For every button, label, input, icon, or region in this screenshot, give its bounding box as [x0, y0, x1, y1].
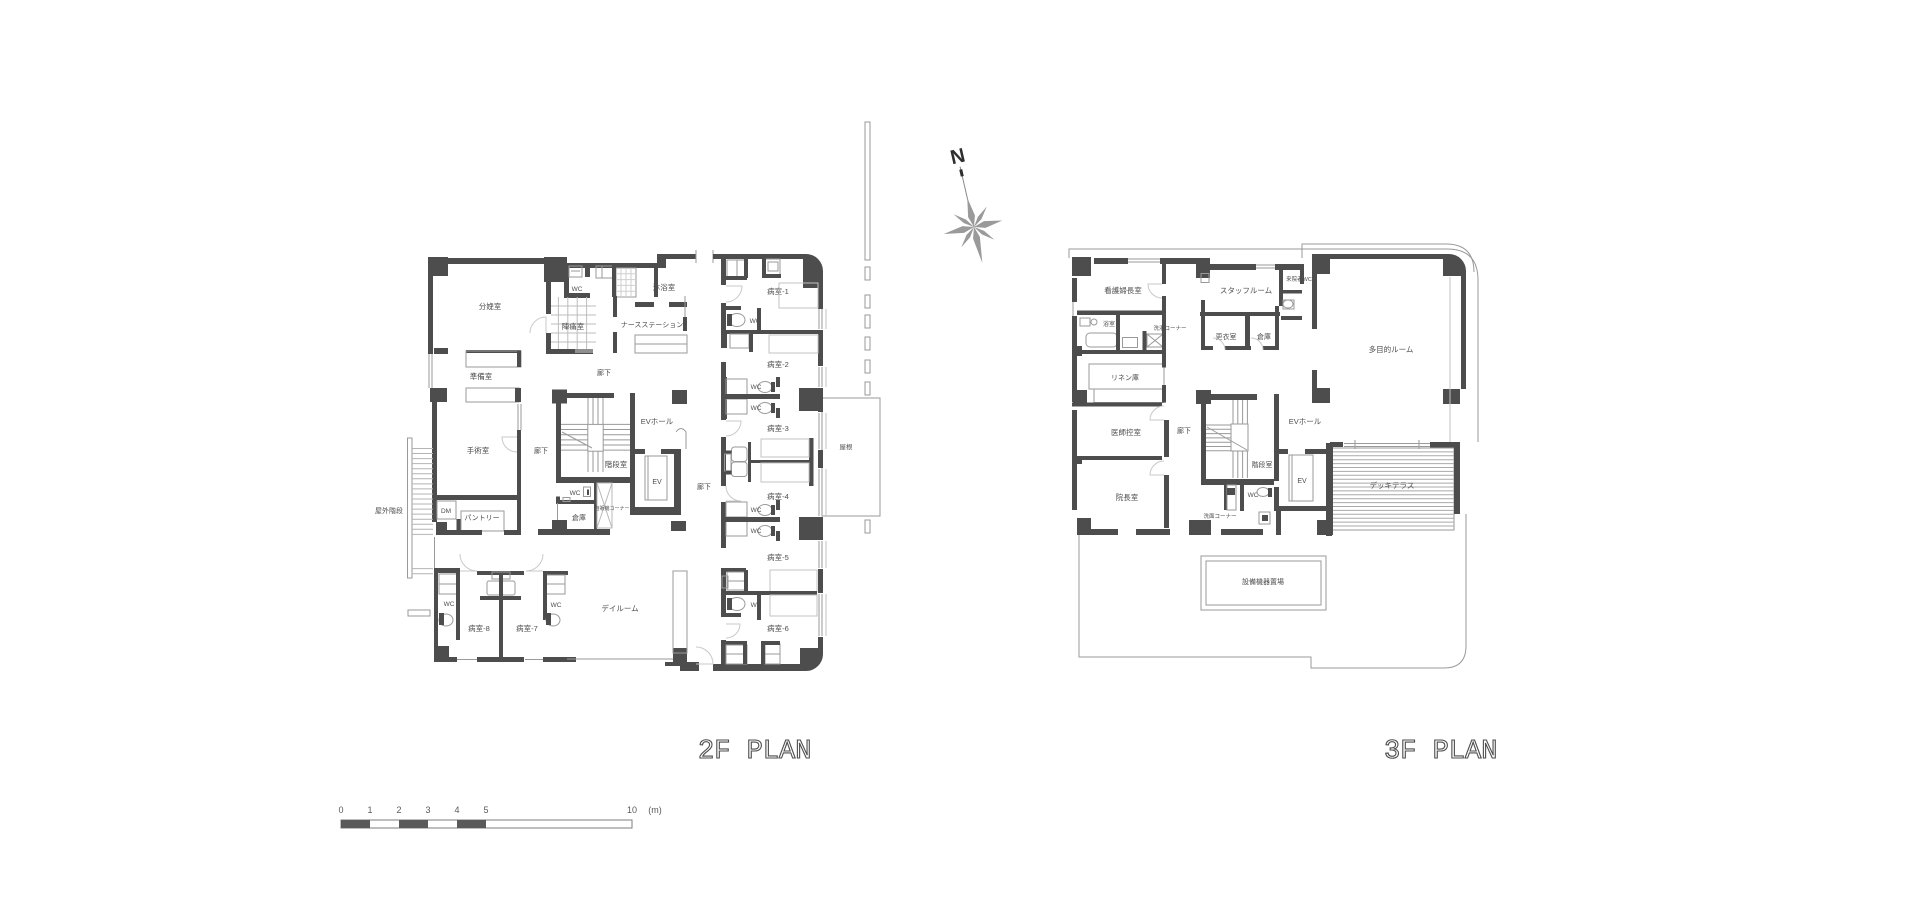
- svg-text:2: 2: [396, 805, 401, 815]
- svg-text:浴室: 浴室: [1103, 320, 1115, 328]
- svg-text:WC: WC: [572, 286, 583, 293]
- svg-text:設備機器置場: 設備機器置場: [1242, 577, 1284, 586]
- svg-text:病室-8: 病室-8: [468, 623, 490, 633]
- svg-text:病室-7: 病室-7: [516, 623, 538, 633]
- svg-text:4: 4: [454, 805, 459, 815]
- svg-text:階段室: 階段室: [1252, 460, 1273, 469]
- svg-text:リネン庫: リネン庫: [1111, 373, 1139, 382]
- svg-text:廊下: 廊下: [697, 482, 711, 491]
- svg-text:WC: WC: [751, 507, 762, 514]
- svg-text:EV: EV: [652, 479, 662, 486]
- svg-text:病室-3: 病室-3: [767, 423, 789, 433]
- svg-text:陣痛室: 陣痛室: [562, 321, 585, 331]
- svg-text:多目的ルーム: 多目的ルーム: [1369, 344, 1414, 354]
- svg-text:来院者WC: 来院者WC: [1286, 275, 1312, 283]
- svg-text:WC: WC: [551, 602, 562, 609]
- svg-text:0: 0: [338, 805, 343, 815]
- svg-text:ナースステーション: ナースステーション: [621, 321, 684, 329]
- svg-text:スタッフルーム: スタッフルーム: [1220, 286, 1272, 295]
- svg-text:看護婦長室: 看護婦長室: [1104, 285, 1142, 295]
- svg-text:EV: EV: [1297, 478, 1307, 485]
- svg-text:10: 10: [627, 805, 637, 815]
- svg-text:階段室: 階段室: [605, 459, 628, 469]
- svg-text:病室-5: 病室-5: [767, 552, 789, 562]
- svg-text:病室-6: 病室-6: [767, 623, 789, 633]
- svg-text:デイルーム: デイルーム: [601, 603, 638, 613]
- svg-text:病室-1: 病室-1: [767, 286, 789, 296]
- svg-text:廊下: 廊下: [597, 368, 611, 377]
- svg-text:2F PLAN: 2F PLAN: [698, 737, 811, 767]
- svg-text:分娩室: 分娩室: [479, 301, 502, 311]
- svg-text:病室-2: 病室-2: [767, 359, 789, 369]
- svg-text:WC: WC: [570, 490, 581, 497]
- svg-text:手術室: 手術室: [467, 445, 490, 455]
- svg-text:洗面コーナー: 洗面コーナー: [1203, 512, 1236, 520]
- svg-text:倉庫: 倉庫: [1257, 332, 1271, 341]
- svg-text:パントリー: パントリー: [464, 514, 499, 522]
- svg-text:屋外階段: 屋外階段: [375, 506, 403, 515]
- svg-text:自販機コーナー: 自販機コーナー: [594, 505, 629, 512]
- svg-text:EVホール: EVホール: [1289, 417, 1322, 426]
- svg-text:1: 1: [367, 805, 372, 815]
- svg-text:WC: WC: [751, 384, 762, 391]
- svg-text:3: 3: [425, 805, 430, 815]
- svg-text:洗濯コーナー: 洗濯コーナー: [1153, 324, 1186, 332]
- svg-text:廊下: 廊下: [1177, 426, 1191, 435]
- svg-text:5: 5: [483, 805, 488, 815]
- svg-text:WC: WC: [444, 601, 455, 608]
- svg-text:病室-4: 病室-4: [767, 491, 789, 501]
- svg-text:EVホール: EVホール: [641, 417, 674, 426]
- svg-text:院長室: 院長室: [1116, 492, 1139, 502]
- svg-text:屋根: 屋根: [840, 442, 854, 451]
- svg-text:WC: WC: [751, 528, 762, 535]
- svg-text:DM: DM: [441, 508, 451, 515]
- svg-text:医師控室: 医師控室: [1111, 427, 1141, 437]
- svg-text:廊下: 廊下: [534, 446, 548, 455]
- svg-text:(m): (m): [648, 805, 662, 815]
- svg-text:準備室: 準備室: [470, 371, 493, 381]
- svg-text:倉庫: 倉庫: [572, 513, 586, 522]
- svg-text:デッキテラス: デッキテラス: [1370, 480, 1415, 490]
- svg-text:WC: WC: [751, 405, 762, 412]
- svg-text:3F PLAN: 3F PLAN: [1384, 737, 1497, 767]
